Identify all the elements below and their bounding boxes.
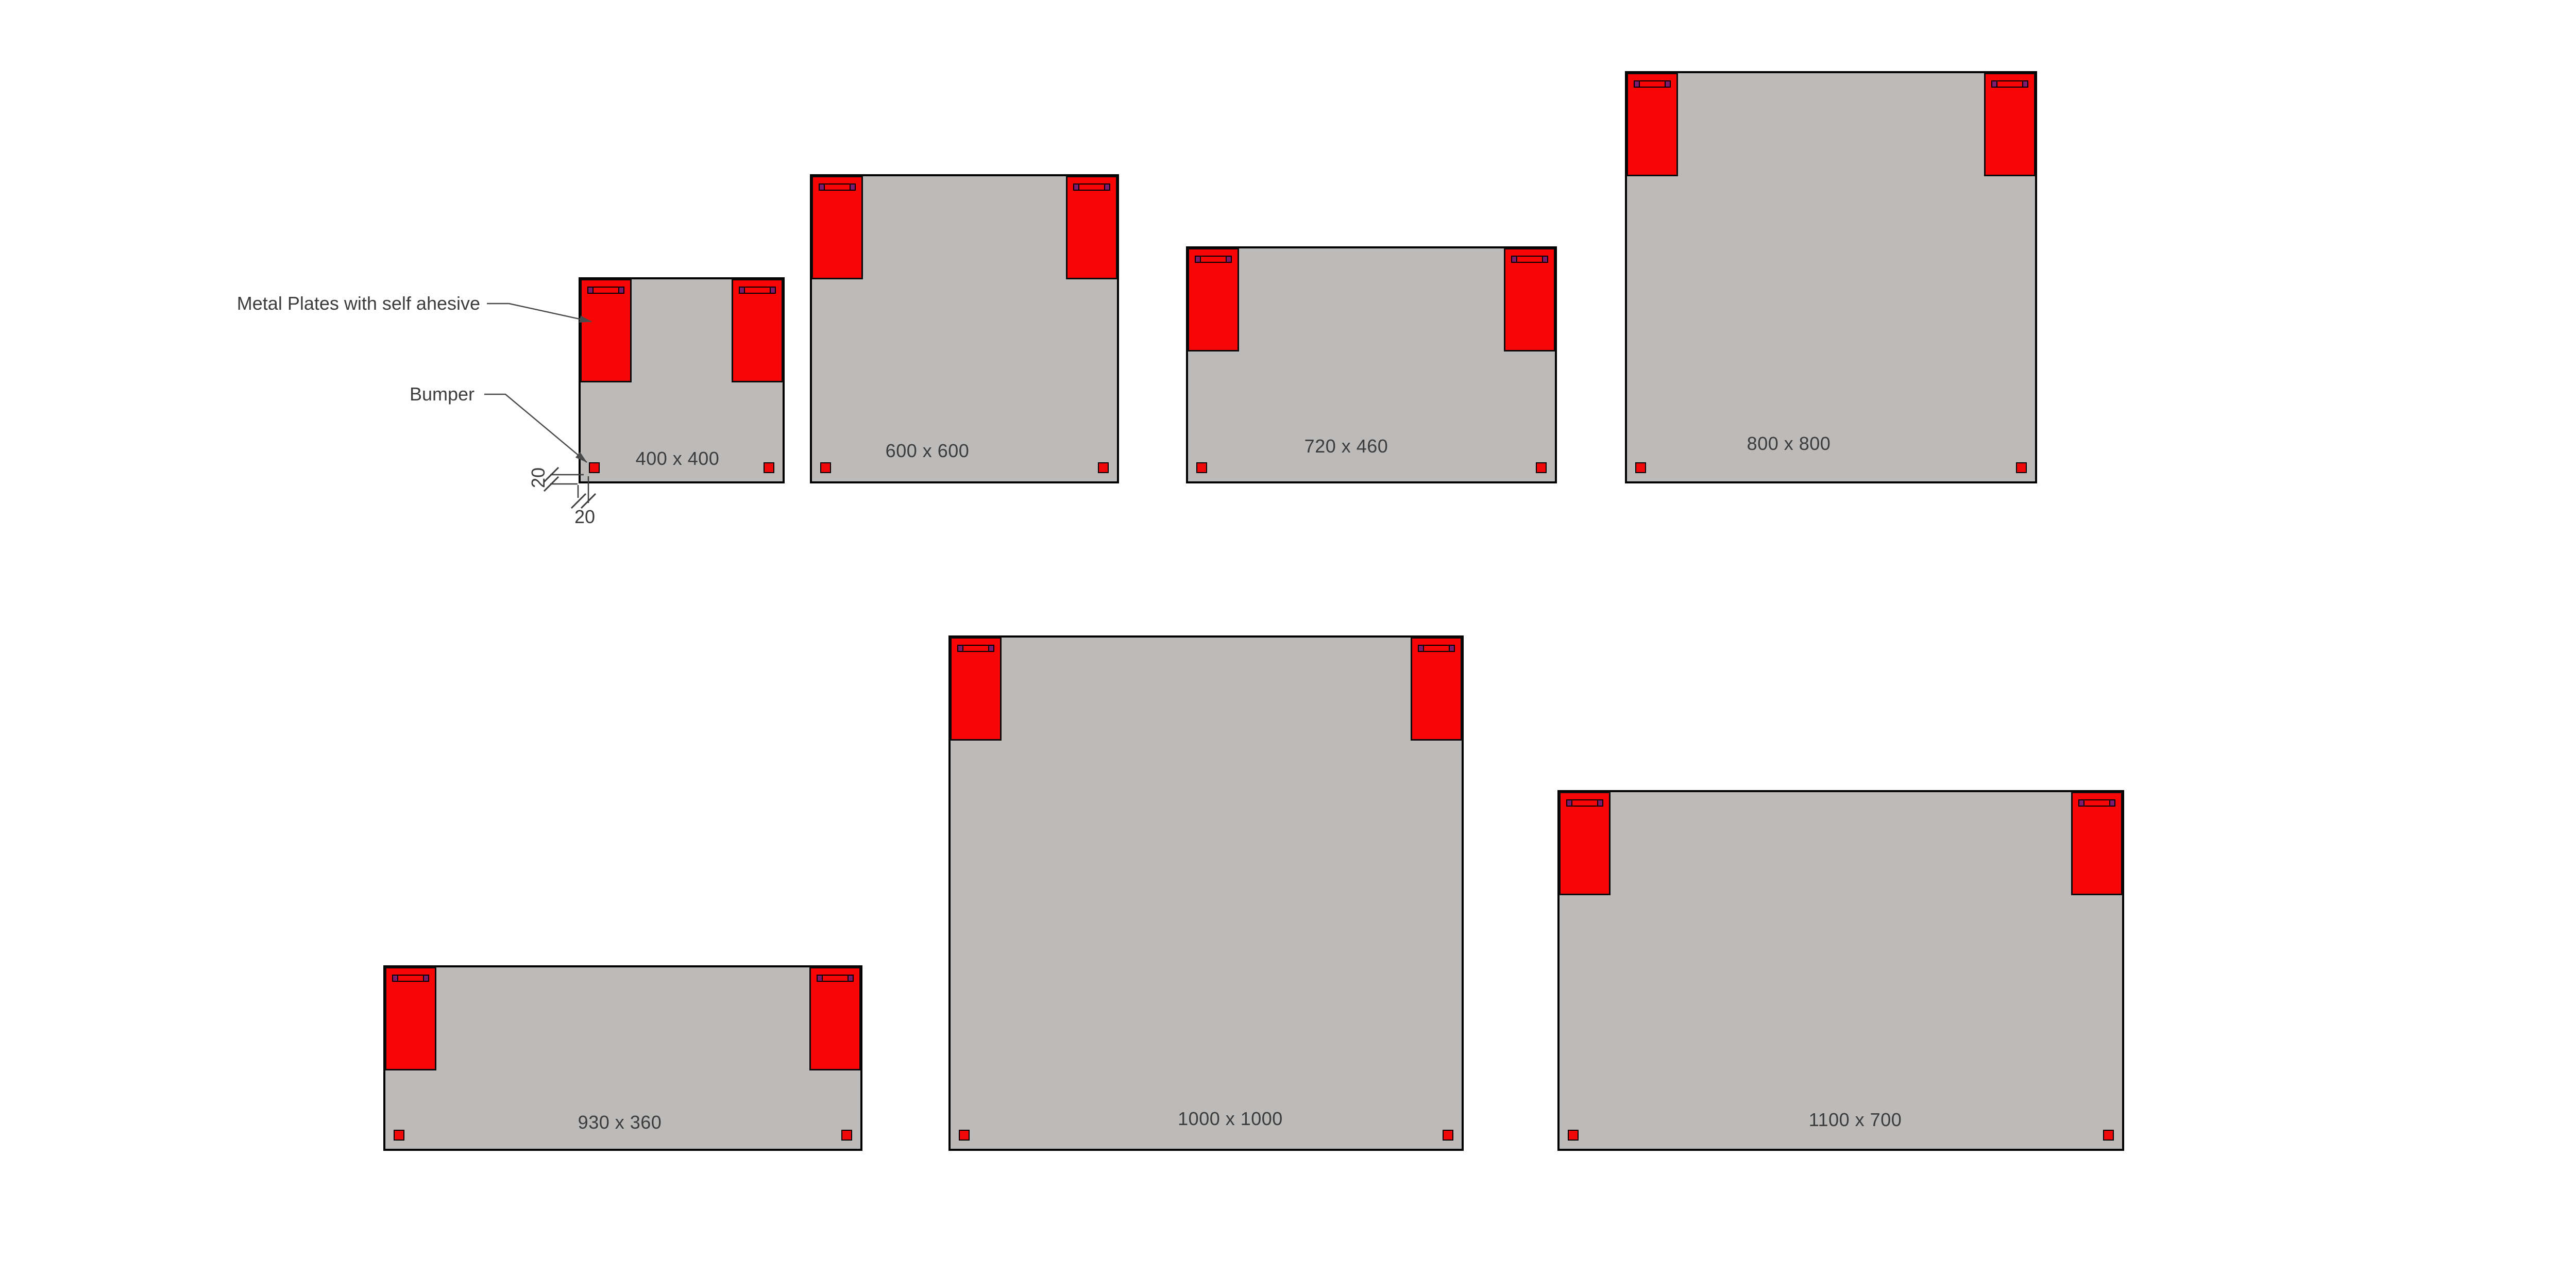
plate-slot [1511,256,1548,263]
slot-bar [398,975,423,982]
slot-end-left [2078,799,2084,807]
metal-plates-note: Metal Plates with self ahesive [237,293,480,314]
bumper-bottom-right [764,462,774,473]
slot-end-right [1597,799,1603,807]
slot-bar [823,975,848,982]
slot-bar [594,287,618,294]
plate-slot [392,975,429,982]
plate-slot [739,287,776,294]
slot-bar [963,645,988,652]
panel-600x600: 600 x 600 [810,174,1119,483]
panel-800x800: 800 x 800 [1625,71,2037,483]
bumper-bottom-right [2016,462,2027,473]
slot-end-right [2109,799,2115,807]
slot-end-left [1634,80,1640,88]
bumper-bottom-left [1196,462,1207,473]
bumper-bottom-right [1443,1130,1453,1141]
slot-bar [1997,80,2022,88]
slot-bar [1201,256,1226,263]
slot-end-right [1542,256,1548,263]
panel-size-label: 400 x 400 [636,448,720,470]
dim-tick [581,494,596,508]
slot-end-right [770,287,776,294]
bumper-bottom-right [841,1130,852,1141]
panel-930x360: 930 x 360 [383,965,862,1151]
drawing-canvas: Metal Plates with self ahesive Bumper 40… [0,0,2576,1273]
slot-end-left [817,975,823,982]
plate-slot [2078,799,2115,807]
slot-bar [1572,799,1597,807]
bumper-bottom-right [1098,462,1109,473]
plate-slot [1418,645,1455,652]
metal-plate-top-right [732,279,783,382]
slot-end-left [1418,645,1424,652]
metal-plate-top-left [385,967,436,1070]
bumper-leader-line [484,394,587,462]
slot-bar [745,287,770,294]
slot-bar [1517,256,1542,263]
metal-plate-top-right [1504,248,1555,351]
panel-1000x1000: 1000 x 1000 [948,635,1464,1151]
slot-end-left [1991,80,1997,88]
bumper-bottom-left [394,1130,404,1141]
metal-plate-top-right [1984,73,2036,176]
slot-bar [825,183,850,191]
bumper-bottom-left [1635,462,1646,473]
metal-plate-top-right [1411,637,1462,741]
slot-bar [2084,799,2109,807]
plate-slot [587,287,624,294]
slot-end-right [1226,256,1232,263]
plate-slot [1195,256,1232,263]
slot-end-left [819,183,825,191]
slot-end-left [1073,183,1079,191]
bumper-note: Bumper [410,383,474,405]
metal-plate-top-left [811,176,863,279]
slot-end-right [618,287,624,294]
bumper-bottom-right [2103,1130,2114,1141]
dim-label-horizontal-20: 20 [574,506,595,527]
metal-plate-top-left [1626,73,1678,176]
panel-size-label: 800 x 800 [1747,433,1831,455]
slot-end-left [392,975,398,982]
plate-slot [819,183,856,191]
metal-plate-top-right [1066,176,1117,279]
slot-end-left [739,287,745,294]
slot-end-left [587,287,594,294]
metal-plate-top-left [1559,792,1611,895]
slot-bar [1079,183,1104,191]
plate-slot [1566,799,1603,807]
plate-slot [957,645,994,652]
metal-plate-top-right [809,967,861,1070]
panel-size-label: 600 x 600 [886,440,970,462]
metal-plate-top-right [2071,792,2123,895]
slot-end-right [1449,645,1455,652]
slot-end-right [988,645,994,652]
plate-slot [1073,183,1110,191]
slot-end-right [850,183,856,191]
panel-size-label: 930 x 360 [578,1112,662,1133]
plate-slot [817,975,854,982]
slot-bar [1424,645,1449,652]
bumper-bottom-left [589,462,600,473]
metal-plate-top-left [950,637,1002,741]
slot-end-right [848,975,854,982]
slot-end-right [1665,80,1671,88]
plate-slot [1634,80,1671,88]
bumper-bottom-right [1536,462,1547,473]
panel-size-label: 1100 x 700 [1809,1109,1902,1131]
bumper-bottom-left [820,462,831,473]
dim-tick [571,494,586,508]
plate-slot [1991,80,2028,88]
slot-bar [1640,80,1665,88]
slot-end-right [1104,183,1110,191]
panel-size-label: 720 x 460 [1304,435,1388,457]
panel-400x400: 400 x 400 [579,277,785,483]
panel-size-label: 1000 x 1000 [1178,1108,1283,1130]
bumper-bottom-left [1568,1130,1579,1141]
slot-end-left [1566,799,1572,807]
slot-end-left [1195,256,1201,263]
metal-plate-top-left [580,279,632,382]
slot-end-right [423,975,429,982]
slot-end-left [957,645,963,652]
slot-end-right [2022,80,2028,88]
metal-plates-leader-line [487,304,591,322]
panel-1100x700: 1100 x 700 [1557,790,2124,1151]
panel-720x460: 720 x 460 [1186,246,1557,483]
metal-plate-top-left [1188,248,1239,351]
slot-end-left [1511,256,1517,263]
dim-tick [544,477,558,491]
bumper-bottom-left [959,1130,970,1141]
dim-tick [544,467,558,482]
dim-label-vertical-20: 20 [528,467,549,488]
